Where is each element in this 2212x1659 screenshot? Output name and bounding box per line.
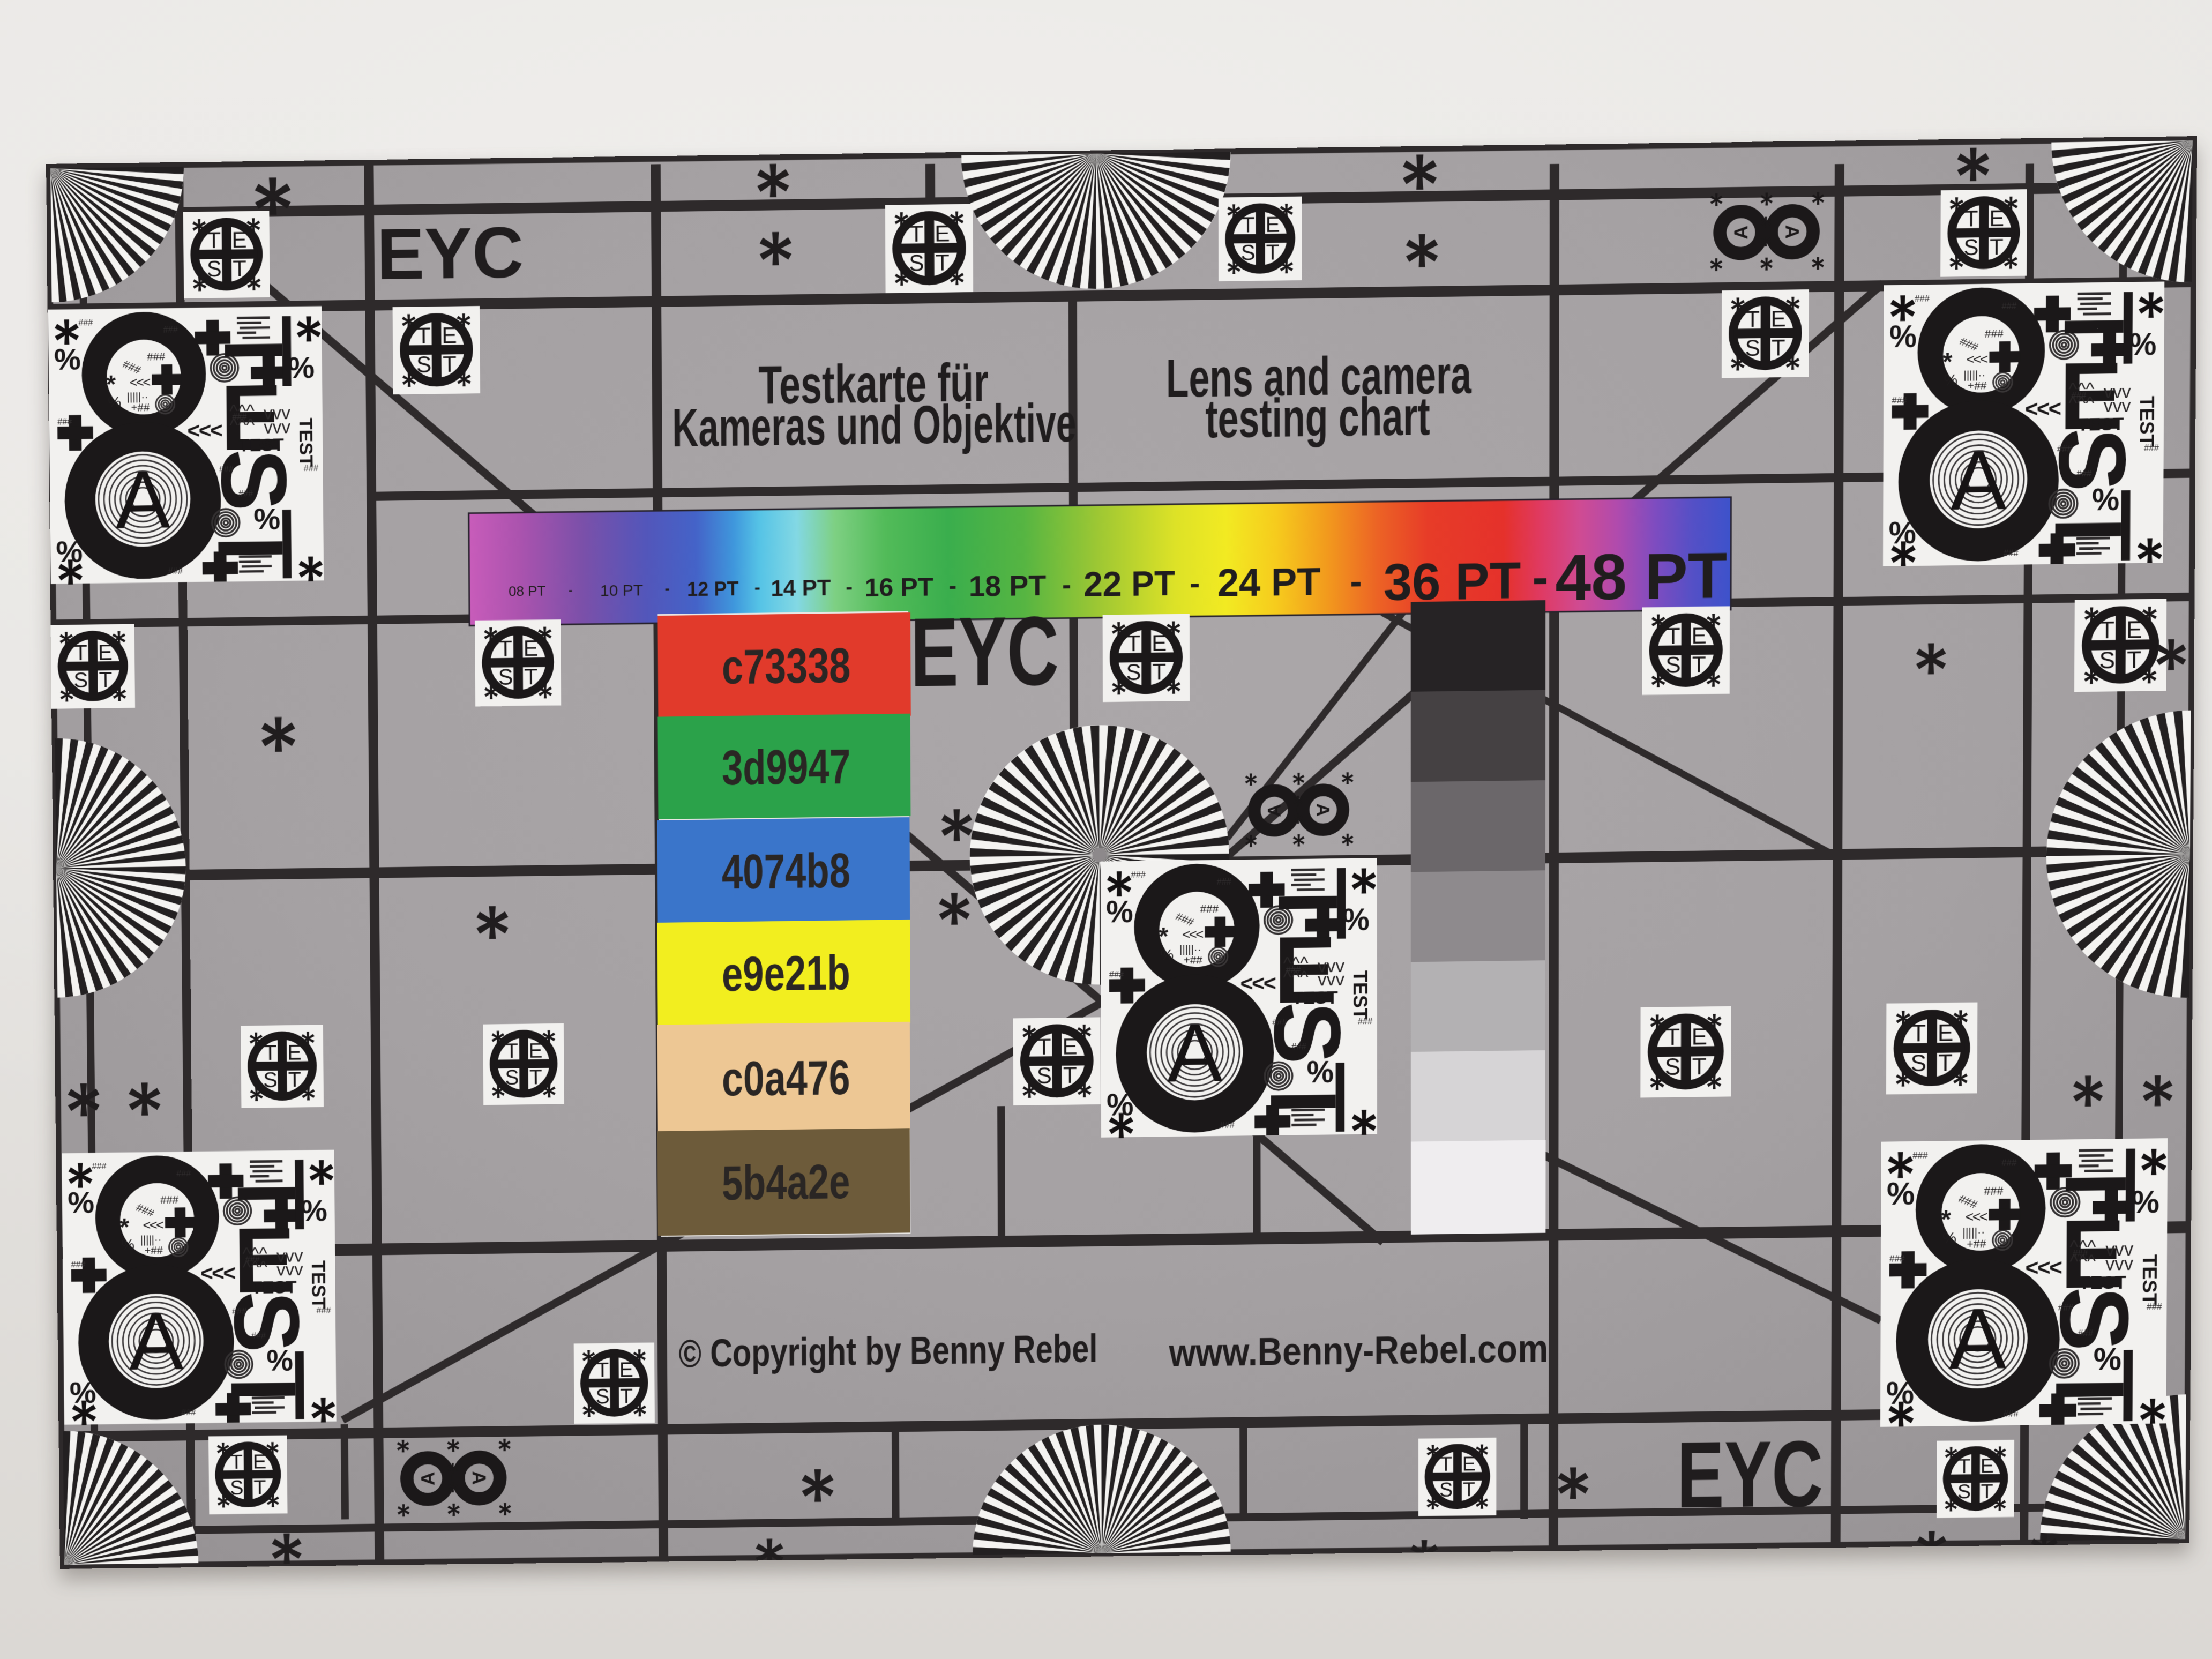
svg-text:e9e21b: e9e21b	[722, 946, 850, 1002]
svg-text:5b4a2e: 5b4a2e	[722, 1155, 850, 1210]
svg-text:-: -	[569, 583, 573, 596]
svg-text:3d9947: 3d9947	[722, 740, 851, 795]
svg-text:10 PT: 10 PT	[600, 581, 643, 600]
svg-text:48 PT: 48 PT	[1555, 540, 1727, 614]
svg-text:-: -	[949, 573, 957, 599]
svg-text:-: -	[1190, 566, 1200, 601]
svg-text:14 PT: 14 PT	[771, 575, 831, 601]
svg-text:-: -	[1350, 561, 1362, 602]
svg-text:-: -	[1532, 550, 1548, 604]
svg-text:24 PT: 24 PT	[1217, 561, 1321, 605]
svg-text:c73338: c73338	[722, 639, 851, 694]
svg-text:-: -	[846, 576, 853, 599]
svg-text:12 PT: 12 PT	[687, 578, 738, 600]
svg-text:-: -	[1062, 569, 1071, 600]
svg-text:www.Benny-Rebel.com: www.Benny-Rebel.com	[1169, 1326, 1549, 1374]
svg-text:EYC: EYC	[910, 596, 1059, 707]
svg-text:-: -	[754, 578, 760, 598]
svg-text:© Copyright by Benny Rebel: © Copyright by Benny Rebel	[678, 1327, 1097, 1376]
svg-text:-: -	[665, 580, 670, 597]
svg-text:4074b8: 4074b8	[722, 844, 850, 899]
svg-text:EYC: EYC	[1677, 1421, 1823, 1527]
svg-text:testing chart: testing chart	[1205, 386, 1430, 449]
svg-text:22 PT: 22 PT	[1083, 564, 1175, 604]
svg-text:EYC: EYC	[377, 212, 524, 295]
svg-text:08 PT: 08 PT	[509, 583, 546, 600]
svg-text:Kameras und Objektive: Kameras und Objektive	[672, 393, 1077, 459]
svg-text:c0a476: c0a476	[722, 1051, 850, 1107]
